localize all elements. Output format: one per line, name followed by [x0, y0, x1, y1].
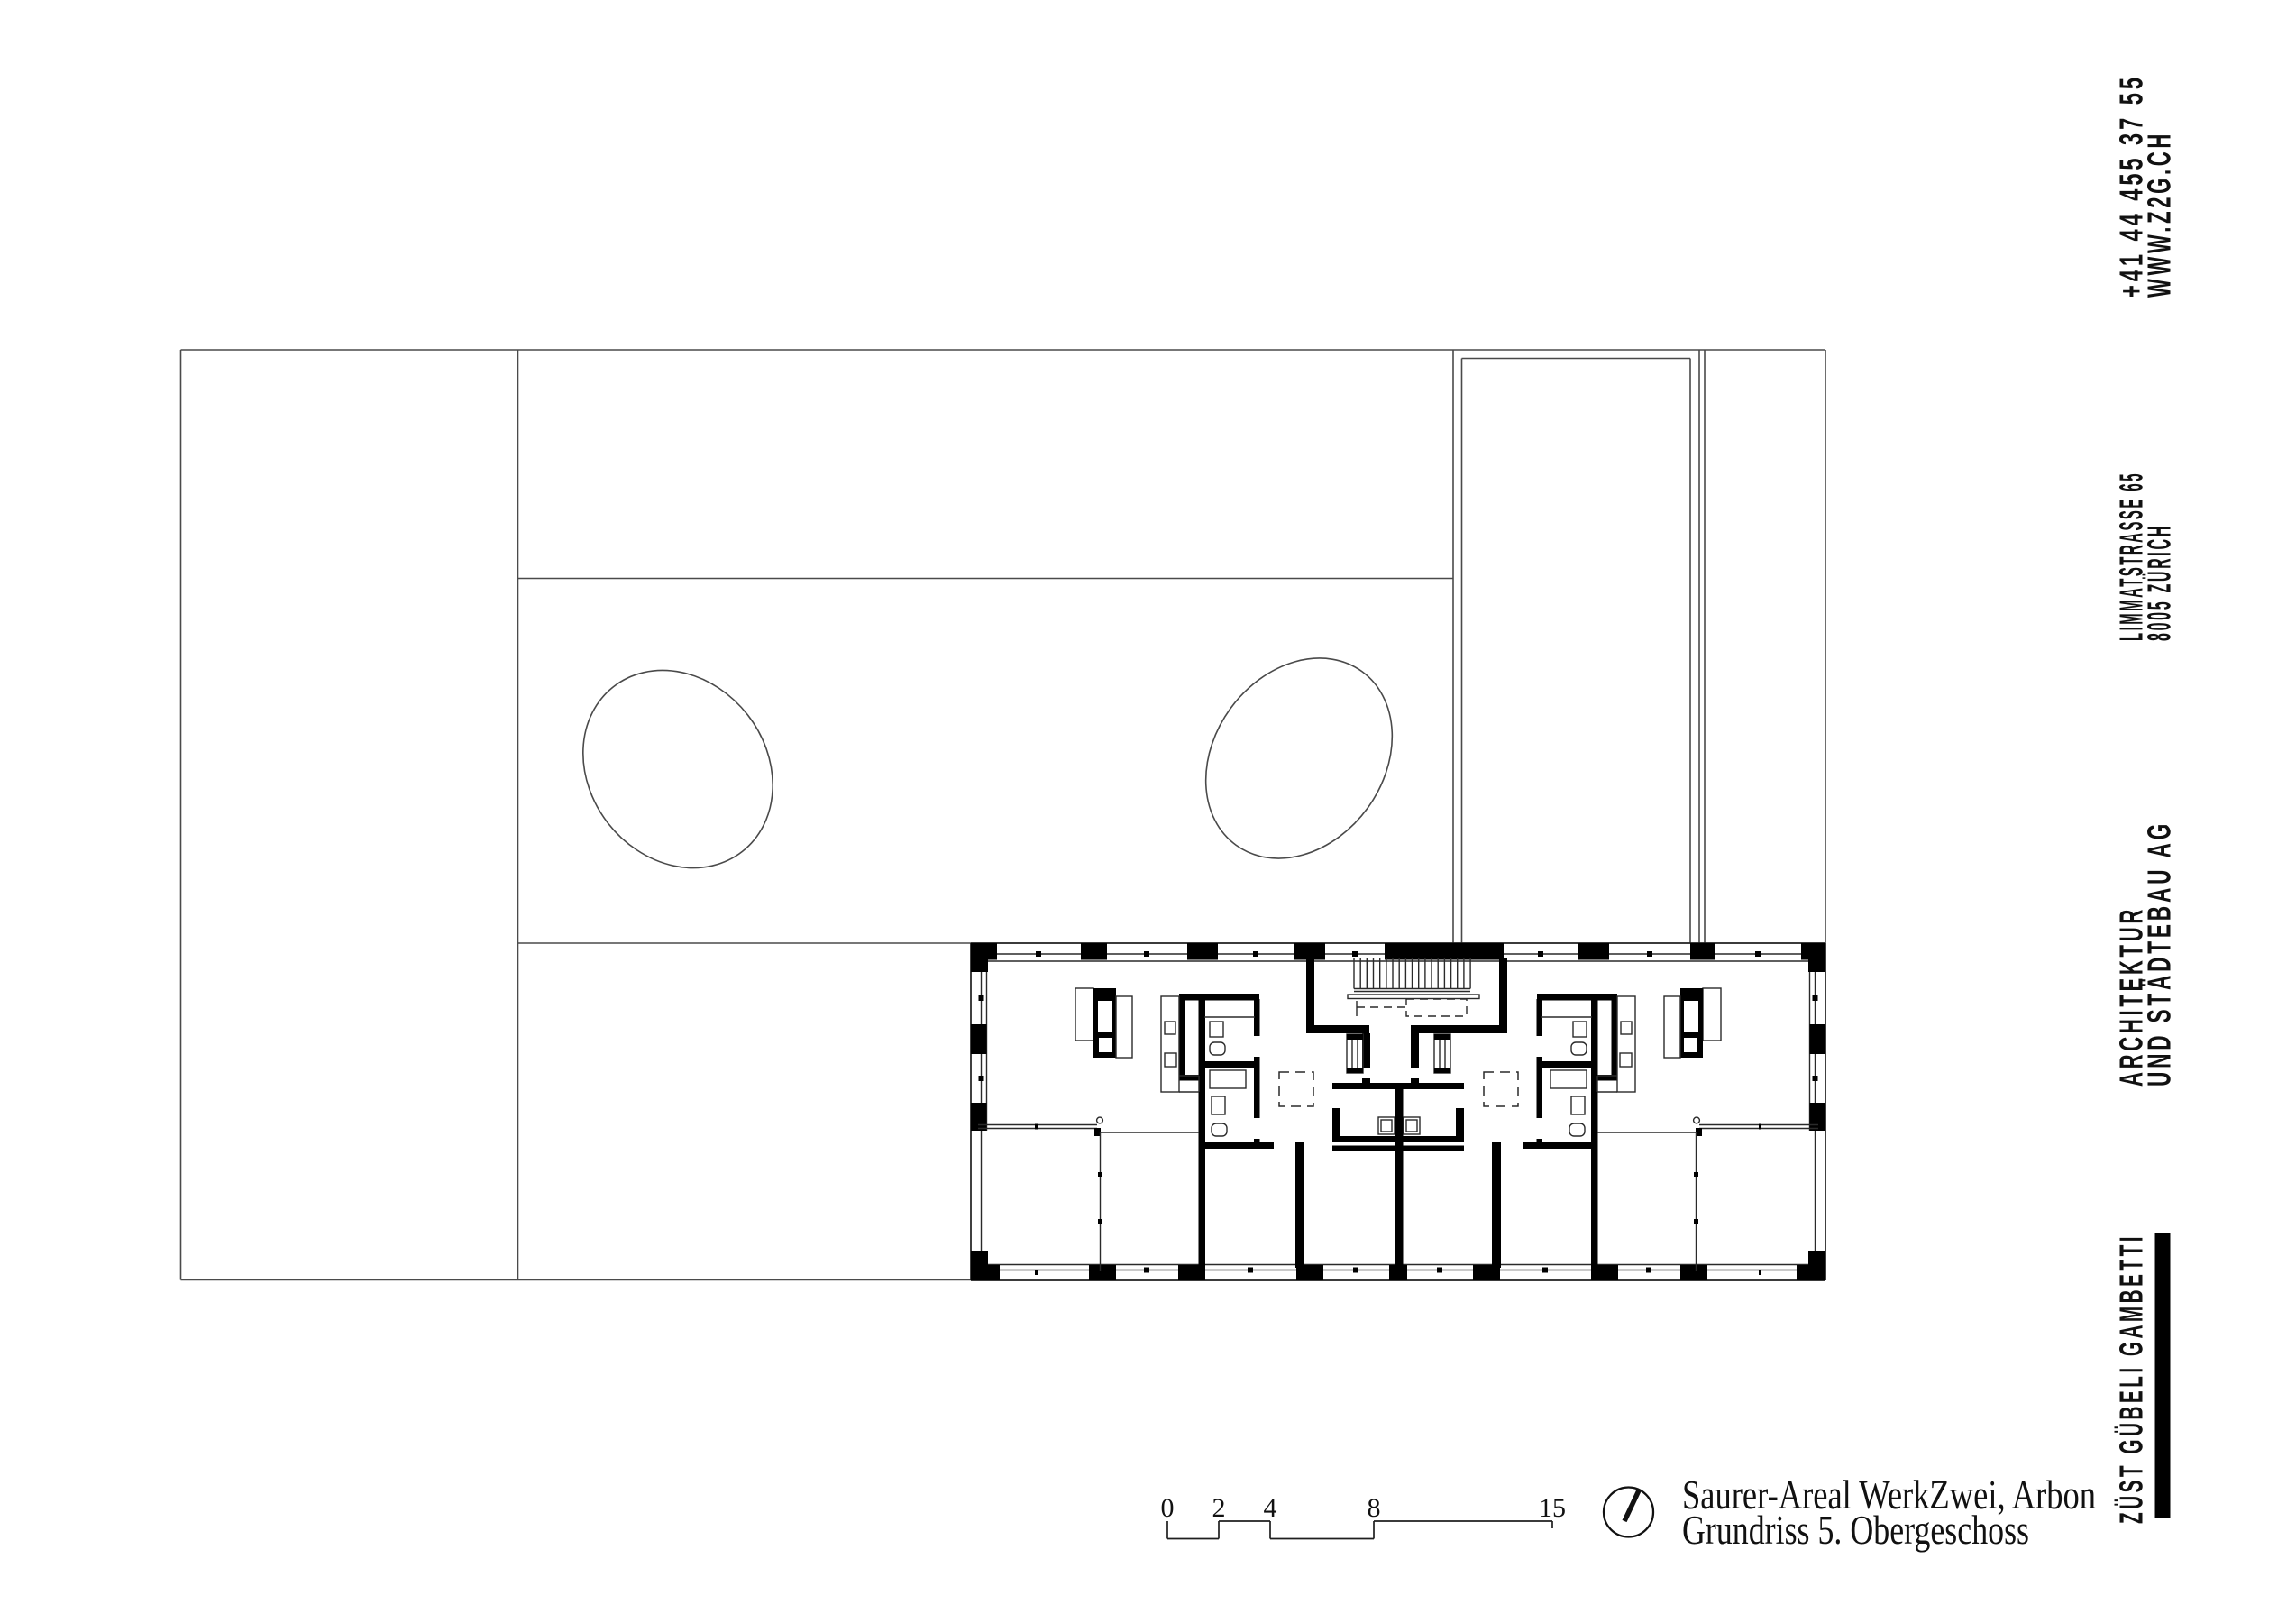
svg-text:ZÜST GÜBELI GAMBETTI: ZÜST GÜBELI GAMBETTI — [2113, 1233, 2150, 1524]
svg-text:8: 8 — [1368, 1493, 1381, 1523]
svg-text:WWW.Z2G.CH: WWW.Z2G.CH — [2141, 131, 2178, 298]
svg-text:0: 0 — [1161, 1493, 1175, 1523]
svg-text:Grundriss 5. Obergeschoss: Grundriss 5. Obergeschoss — [1682, 1508, 2029, 1553]
svg-text:15: 15 — [1539, 1493, 1566, 1523]
svg-text:4: 4 — [1264, 1493, 1277, 1523]
svg-text:UND STÄDTEBAU AG: UND STÄDTEBAU AG — [2141, 821, 2178, 1087]
svg-text:2: 2 — [1212, 1493, 1226, 1523]
svg-text:8005 ZÜRICH: 8005 ZÜRICH — [2141, 524, 2178, 641]
